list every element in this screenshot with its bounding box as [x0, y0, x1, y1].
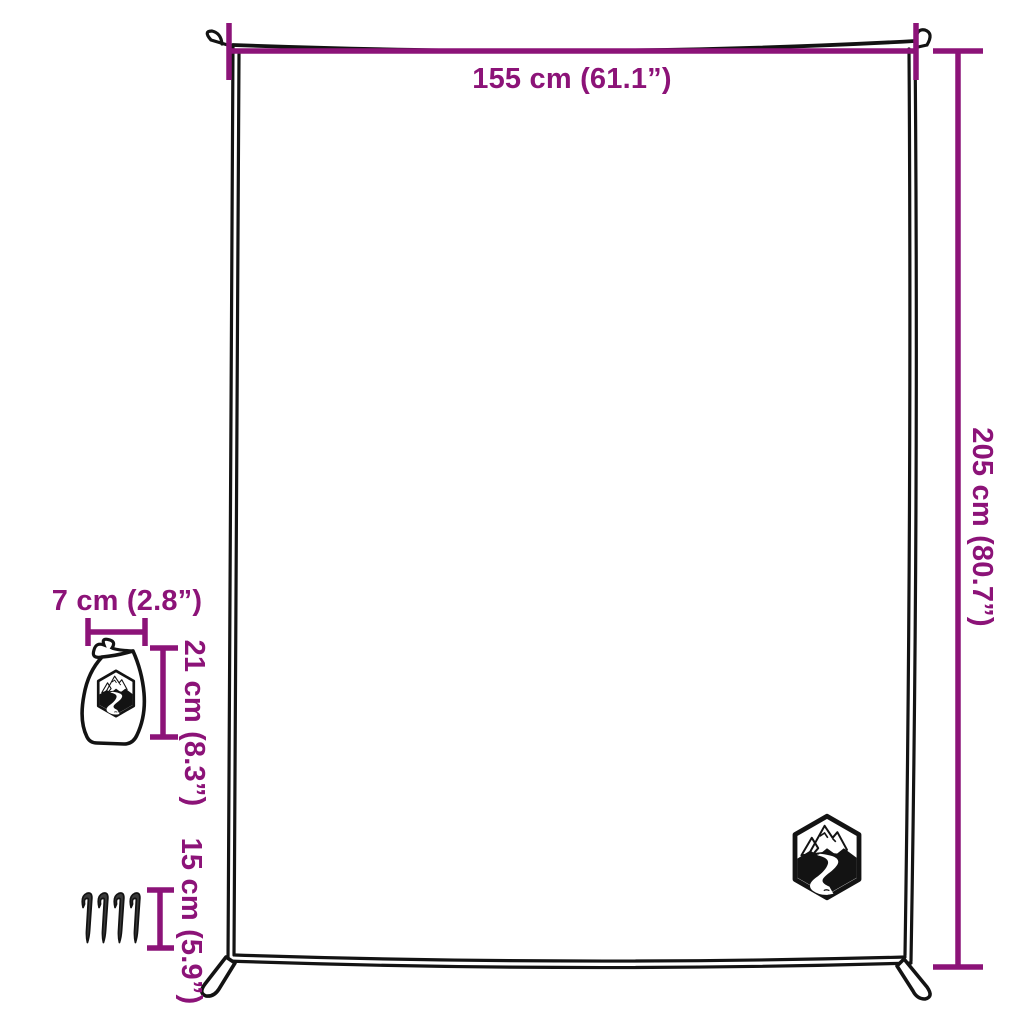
bag-width-dimension-line: [88, 618, 145, 646]
bag-height-dimension-line: [150, 648, 178, 737]
brand-logo-icon: [795, 816, 859, 898]
tent-peg-icon: [98, 893, 108, 942]
diagram-artwork: [0, 0, 1024, 1024]
product-dimension-diagram: 155 cm (61.1”) 205 cm (80.7”) 7 cm (2.8”…: [0, 0, 1024, 1024]
brand-logo-icon-small: [98, 671, 134, 716]
peg-length-dimension-line: [147, 890, 174, 948]
blanket-outline: [228, 41, 916, 968]
corner-loop-bottom-right-icon: [897, 959, 930, 999]
peg-length-label: 15 cm (5.9”): [173, 771, 209, 1024]
blanket-width-label: 155 cm (61.1”): [372, 61, 772, 97]
blanket-height-label: 205 cm (80.7”): [964, 327, 1000, 727]
tent-peg-icon: [114, 893, 124, 942]
storage-bag-icon: [82, 639, 144, 744]
bag-width-label: 7 cm (2.8”): [0, 583, 277, 619]
tent-pegs: [82, 893, 140, 942]
tent-peg-icon: [130, 893, 140, 942]
tent-peg-icon: [82, 893, 92, 942]
